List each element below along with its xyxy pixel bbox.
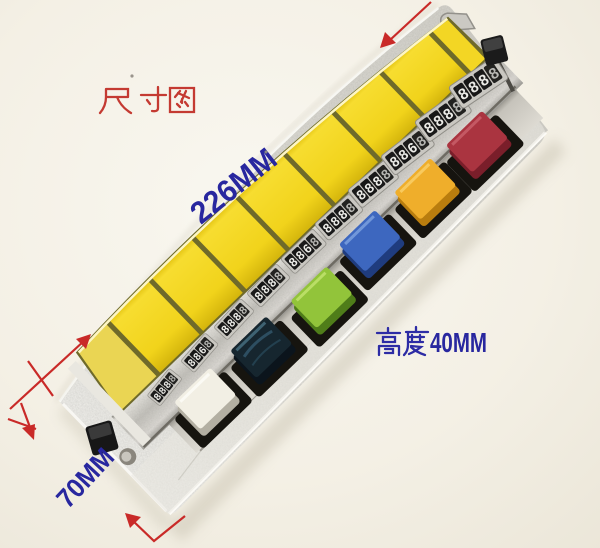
svg-text:40MM: 40MM (430, 327, 487, 358)
